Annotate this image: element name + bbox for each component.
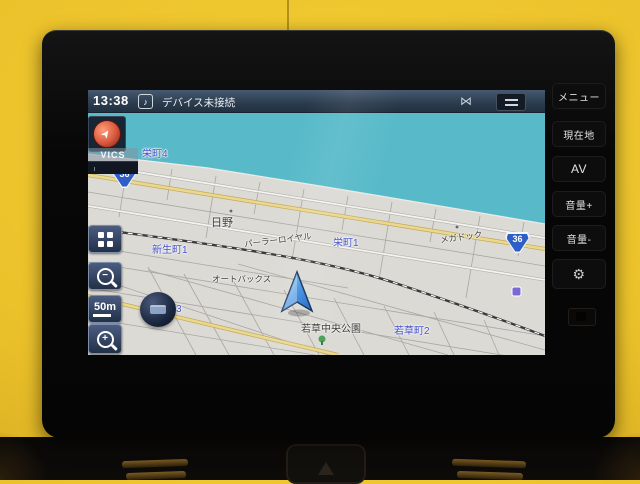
compass-circle: ➤ xyxy=(93,120,121,148)
navigation-screen: 栄町4 日野 パーラーロイヤル 栄町1 メガドック 新生町1 新生局 オートバッ… xyxy=(88,90,545,355)
map-scale-button[interactable]: 50m xyxy=(88,295,122,323)
vics-label: VICS xyxy=(88,148,138,161)
map-poi-button[interactable] xyxy=(140,292,176,327)
hazard-triangle-icon xyxy=(318,462,334,475)
map-menu-button[interactable] xyxy=(88,225,122,253)
map-label-wakakusacho2: 若草町2 xyxy=(394,322,430,337)
map-canvas[interactable]: 栄町4 日野 パーラーロイヤル 栄町1 メガドック 新生町1 新生局 オートバッ… xyxy=(88,112,545,355)
map-label-hino: 日野 xyxy=(211,214,233,230)
hard-button-menu[interactable]: メニュー xyxy=(552,83,606,109)
magnifier-minus-icon: − xyxy=(97,268,114,285)
grid-icon xyxy=(98,232,113,247)
music-note-icon: ♪ xyxy=(143,97,148,107)
zoom-out-button[interactable]: − xyxy=(88,262,122,290)
facility-icon xyxy=(512,287,521,296)
hard-button-current-location-label: 現在地 xyxy=(563,127,595,142)
photo-of-car-dashboard: { "screen": { "status_bar": { "time": "1… xyxy=(0,0,640,480)
hard-button-menu-label: メニュー xyxy=(558,89,600,104)
sd-card-slot-hole xyxy=(576,312,586,321)
hard-button-av[interactable]: AV xyxy=(552,156,606,182)
compass-arrow-icon: ➤ xyxy=(100,127,114,141)
audio-source-icon: ♪ xyxy=(138,94,153,109)
status-bar: 13:38 ♪ デバイス未接続 ⋈ xyxy=(88,90,545,113)
card-icon xyxy=(150,305,166,314)
map-label-sakaemachi1: 栄町1 xyxy=(333,234,359,249)
scale-bar xyxy=(93,314,111,317)
map-label-shinseicho1: 新生町1 xyxy=(152,241,188,256)
zoom-in-button[interactable]: + xyxy=(88,324,122,354)
vics-indicator: VICS xyxy=(88,148,138,174)
sd-card-slot[interactable] xyxy=(568,308,596,326)
gear-icon: ⚙ xyxy=(572,266,585,283)
hard-button-volume-down[interactable]: 音量- xyxy=(552,225,606,251)
hazard-button[interactable] xyxy=(286,444,366,484)
map-label-sakaemachi4: 栄町4 xyxy=(142,145,168,160)
hard-button-av-label: AV xyxy=(571,162,587,176)
hard-button-current-location[interactable]: 現在地 xyxy=(552,121,606,147)
no-signal-icon: ⋈ xyxy=(460,94,472,108)
clock: 13:38 xyxy=(93,93,129,108)
map-label-autobacs: オートバックス xyxy=(212,273,271,285)
vics-timestamp-bar xyxy=(88,161,138,174)
compass-heading-button[interactable]: ➤ xyxy=(88,116,126,152)
map-label-wakakusa-park: 若草中央公園 xyxy=(301,320,361,335)
wall-seam xyxy=(287,0,289,34)
hard-button-settings[interactable]: ⚙ xyxy=(552,259,606,289)
device-status-text: デバイス未接続 xyxy=(162,95,235,110)
hard-button-volume-down-label: 音量- xyxy=(567,231,592,246)
status-list-button[interactable] xyxy=(496,93,526,111)
hard-button-volume-up-label: 音量+ xyxy=(565,197,592,212)
magnifier-plus-icon: + xyxy=(97,331,114,348)
scale-label: 50m xyxy=(94,302,116,313)
hard-button-volume-up[interactable]: 音量+ xyxy=(552,191,606,217)
